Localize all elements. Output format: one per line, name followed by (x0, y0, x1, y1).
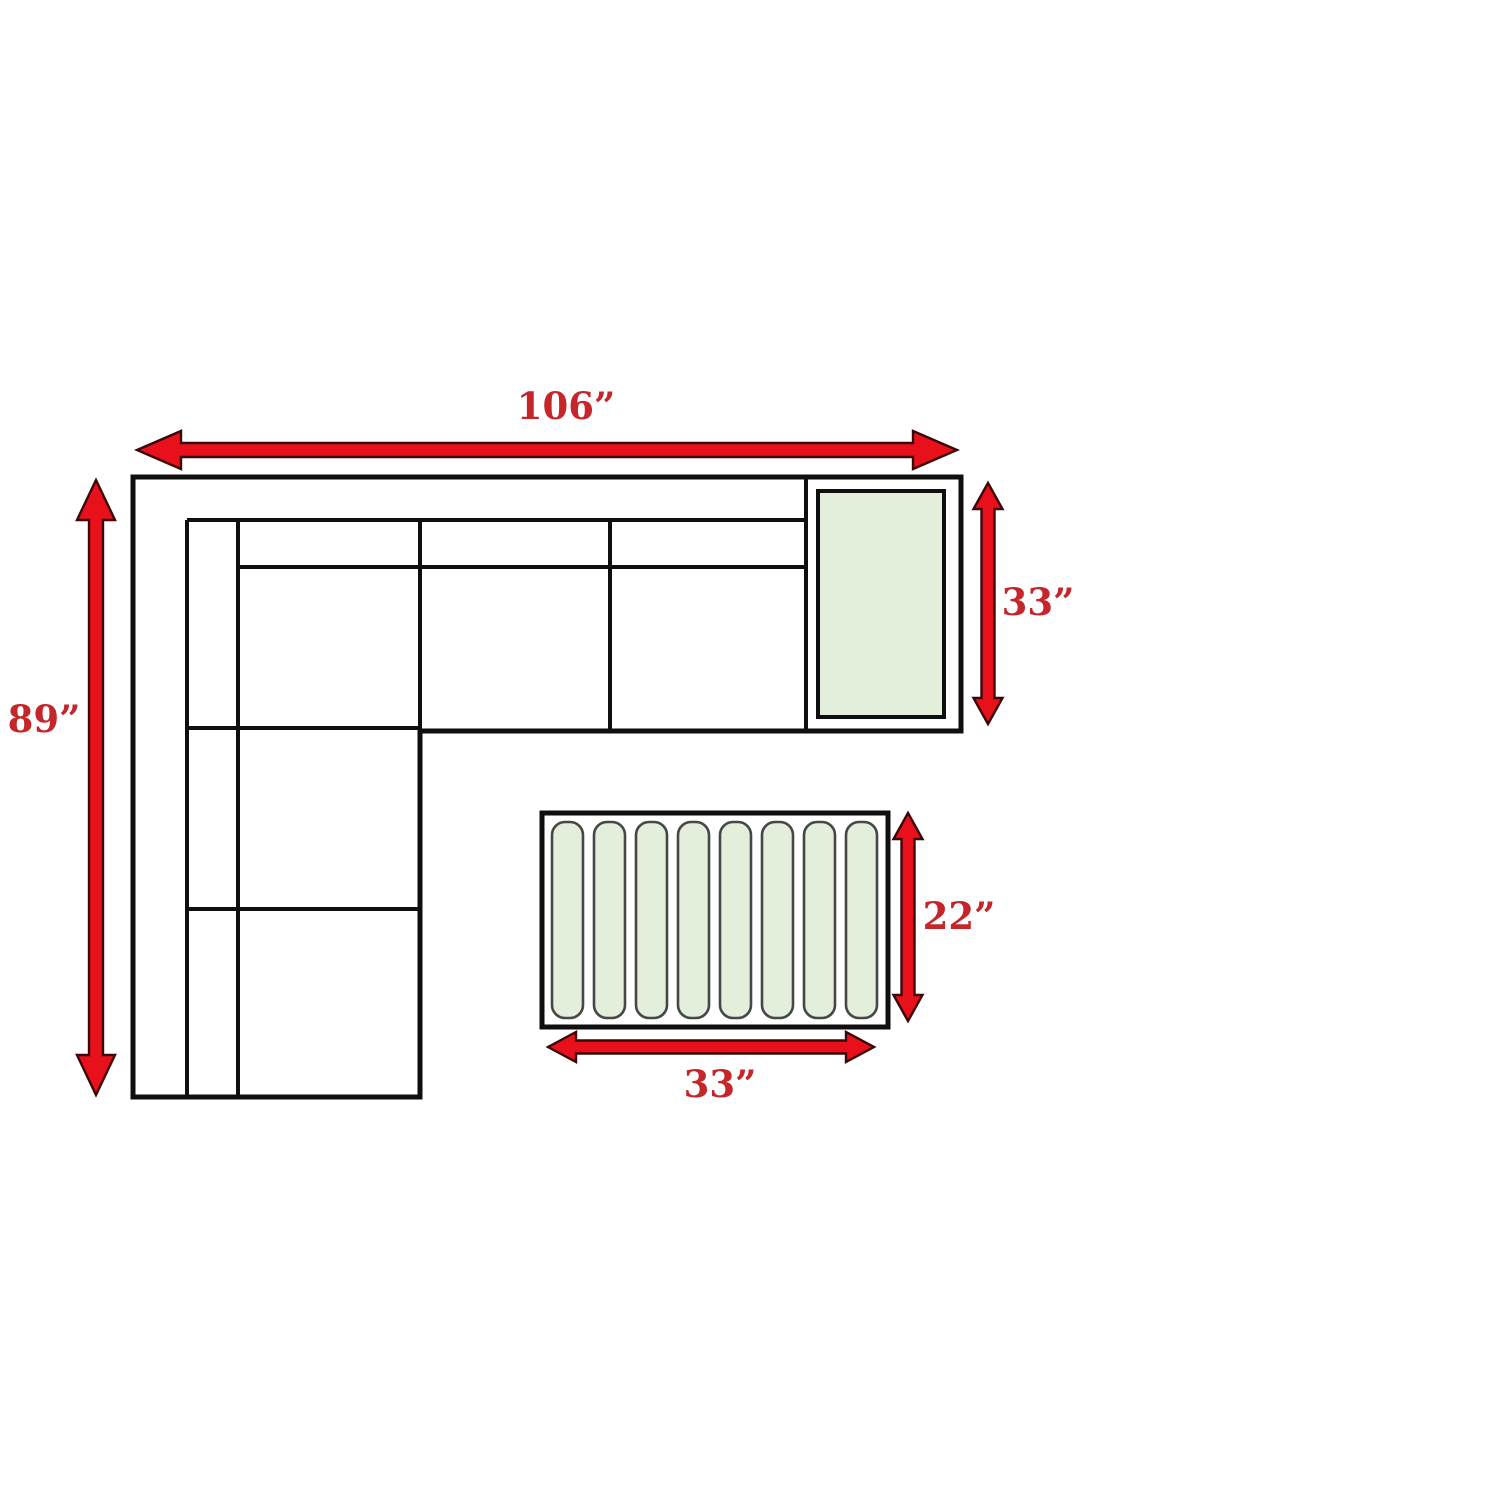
coffee-table-slat-6 (762, 822, 793, 1018)
coffee-table-slat-8 (846, 822, 877, 1018)
coffee-table-slat-2 (594, 822, 625, 1018)
coffee-table (542, 813, 888, 1027)
coffee-table-slat-7 (804, 822, 835, 1018)
coffee-table-slat-5 (720, 822, 751, 1018)
coffee-table-slat-3 (636, 822, 667, 1018)
coffee-table-width-label: 33” (684, 1062, 757, 1106)
sofa-width-arrow (137, 431, 957, 469)
sofa-depth-arrow (77, 480, 115, 1095)
coffee-table-depth-arrow (894, 813, 923, 1021)
coffee-table-slat-4 (678, 822, 709, 1018)
corner-table-depth-arrow (974, 483, 1003, 724)
diagram-canvas: 106” 89” 33” 22” 33” (0, 0, 1500, 1500)
sofa-width-label: 106” (517, 384, 616, 428)
corner-table-top-panel (818, 491, 944, 717)
coffee-table-slat-1 (552, 822, 583, 1018)
coffee-table-depth-label: 22” (923, 894, 996, 938)
furniture-dimension-diagram: 106” 89” 33” 22” 33” (0, 0, 1500, 1500)
corner-table-depth-label: 33” (1002, 580, 1075, 624)
sofa-depth-label: 89” (8, 697, 81, 741)
coffee-table-width-arrow (548, 1032, 874, 1062)
